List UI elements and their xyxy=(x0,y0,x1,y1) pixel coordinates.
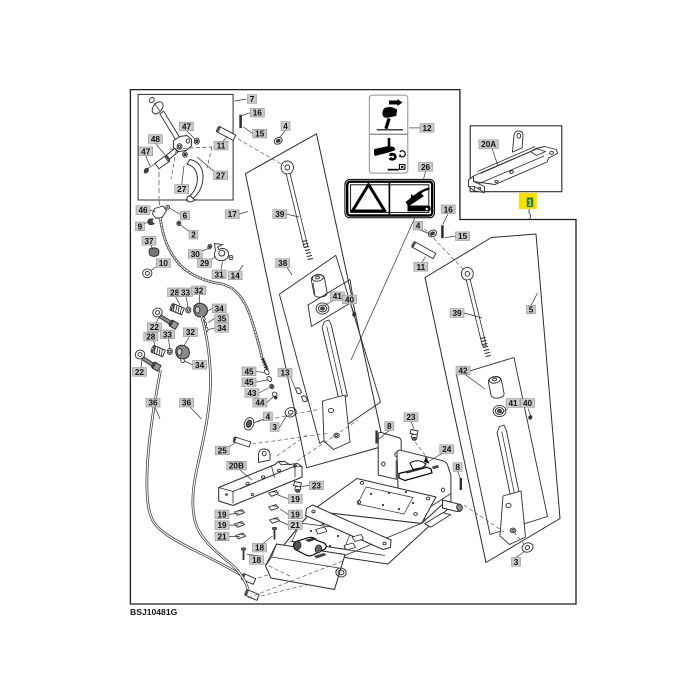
svg-text:29: 29 xyxy=(200,259,210,268)
svg-text:19: 19 xyxy=(291,495,301,504)
svg-text:34: 34 xyxy=(215,304,225,313)
svg-text:18: 18 xyxy=(255,544,265,553)
svg-text:8: 8 xyxy=(387,422,392,431)
svg-text:45: 45 xyxy=(244,367,254,376)
svg-text:6: 6 xyxy=(183,212,188,221)
svg-text:30: 30 xyxy=(191,250,201,259)
svg-text:3: 3 xyxy=(514,558,519,567)
svg-text:4: 4 xyxy=(416,222,421,231)
svg-text:19: 19 xyxy=(217,521,227,530)
svg-text:42: 42 xyxy=(458,367,468,376)
svg-text:41: 41 xyxy=(508,399,518,408)
svg-text:22: 22 xyxy=(135,368,145,377)
svg-text:4: 4 xyxy=(283,122,288,131)
svg-text:34: 34 xyxy=(217,324,227,333)
svg-text:33: 33 xyxy=(163,330,173,339)
svg-text:26: 26 xyxy=(421,163,431,172)
svg-text:28: 28 xyxy=(146,333,156,342)
svg-text:16: 16 xyxy=(444,205,454,214)
svg-text:3: 3 xyxy=(272,423,277,432)
svg-text:35: 35 xyxy=(217,314,227,323)
svg-text:15: 15 xyxy=(255,130,265,139)
svg-text:15: 15 xyxy=(458,232,468,241)
svg-text:47: 47 xyxy=(141,147,151,156)
svg-text:47: 47 xyxy=(182,123,192,132)
svg-text:13: 13 xyxy=(280,369,290,378)
svg-text:20B: 20B xyxy=(229,462,244,471)
svg-text:21: 21 xyxy=(217,532,227,541)
svg-text:40: 40 xyxy=(523,399,533,408)
svg-text:14: 14 xyxy=(231,271,241,280)
svg-text:43: 43 xyxy=(247,389,257,398)
svg-text:25: 25 xyxy=(218,447,228,456)
svg-text:46: 46 xyxy=(138,206,148,215)
svg-text:23: 23 xyxy=(312,481,322,490)
svg-text:37: 37 xyxy=(144,237,154,246)
svg-text:21: 21 xyxy=(291,521,301,530)
svg-text:19: 19 xyxy=(291,510,301,519)
svg-text:27: 27 xyxy=(216,171,226,180)
svg-text:38: 38 xyxy=(278,259,288,268)
svg-text:5: 5 xyxy=(529,306,534,315)
svg-text:10: 10 xyxy=(159,259,169,268)
svg-text:23: 23 xyxy=(406,413,416,422)
svg-text:24: 24 xyxy=(442,445,452,454)
svg-text:12: 12 xyxy=(422,124,432,133)
svg-text:32: 32 xyxy=(186,328,196,337)
svg-text:34: 34 xyxy=(195,361,205,370)
svg-text:39: 39 xyxy=(452,309,462,318)
svg-text:2: 2 xyxy=(191,231,196,240)
svg-text:32: 32 xyxy=(194,286,204,295)
svg-text:27: 27 xyxy=(177,185,187,194)
svg-text:8: 8 xyxy=(455,463,460,472)
svg-text:33: 33 xyxy=(181,288,191,297)
svg-text:19: 19 xyxy=(217,510,227,519)
svg-text:11: 11 xyxy=(217,142,226,151)
svg-text:11: 11 xyxy=(416,263,425,272)
svg-text:18: 18 xyxy=(252,556,262,565)
svg-text:7: 7 xyxy=(250,95,255,104)
svg-text:44: 44 xyxy=(255,399,265,408)
svg-text:39: 39 xyxy=(275,210,285,219)
svg-text:36: 36 xyxy=(148,399,158,408)
svg-text:22: 22 xyxy=(150,323,160,332)
svg-text:4: 4 xyxy=(266,412,271,421)
svg-text:17: 17 xyxy=(228,210,238,219)
svg-text:20A: 20A xyxy=(481,140,496,149)
svg-text:41: 41 xyxy=(333,292,343,301)
svg-text:1: 1 xyxy=(528,198,533,207)
svg-text:48: 48 xyxy=(151,135,161,144)
svg-text:45: 45 xyxy=(244,378,254,387)
svg-text:BSJ10481G: BSJ10481G xyxy=(130,607,178,617)
svg-text:9: 9 xyxy=(138,222,143,231)
svg-text:31: 31 xyxy=(215,270,225,279)
svg-text:40: 40 xyxy=(345,296,355,305)
svg-text:36: 36 xyxy=(182,399,192,408)
svg-text:16: 16 xyxy=(253,109,263,118)
